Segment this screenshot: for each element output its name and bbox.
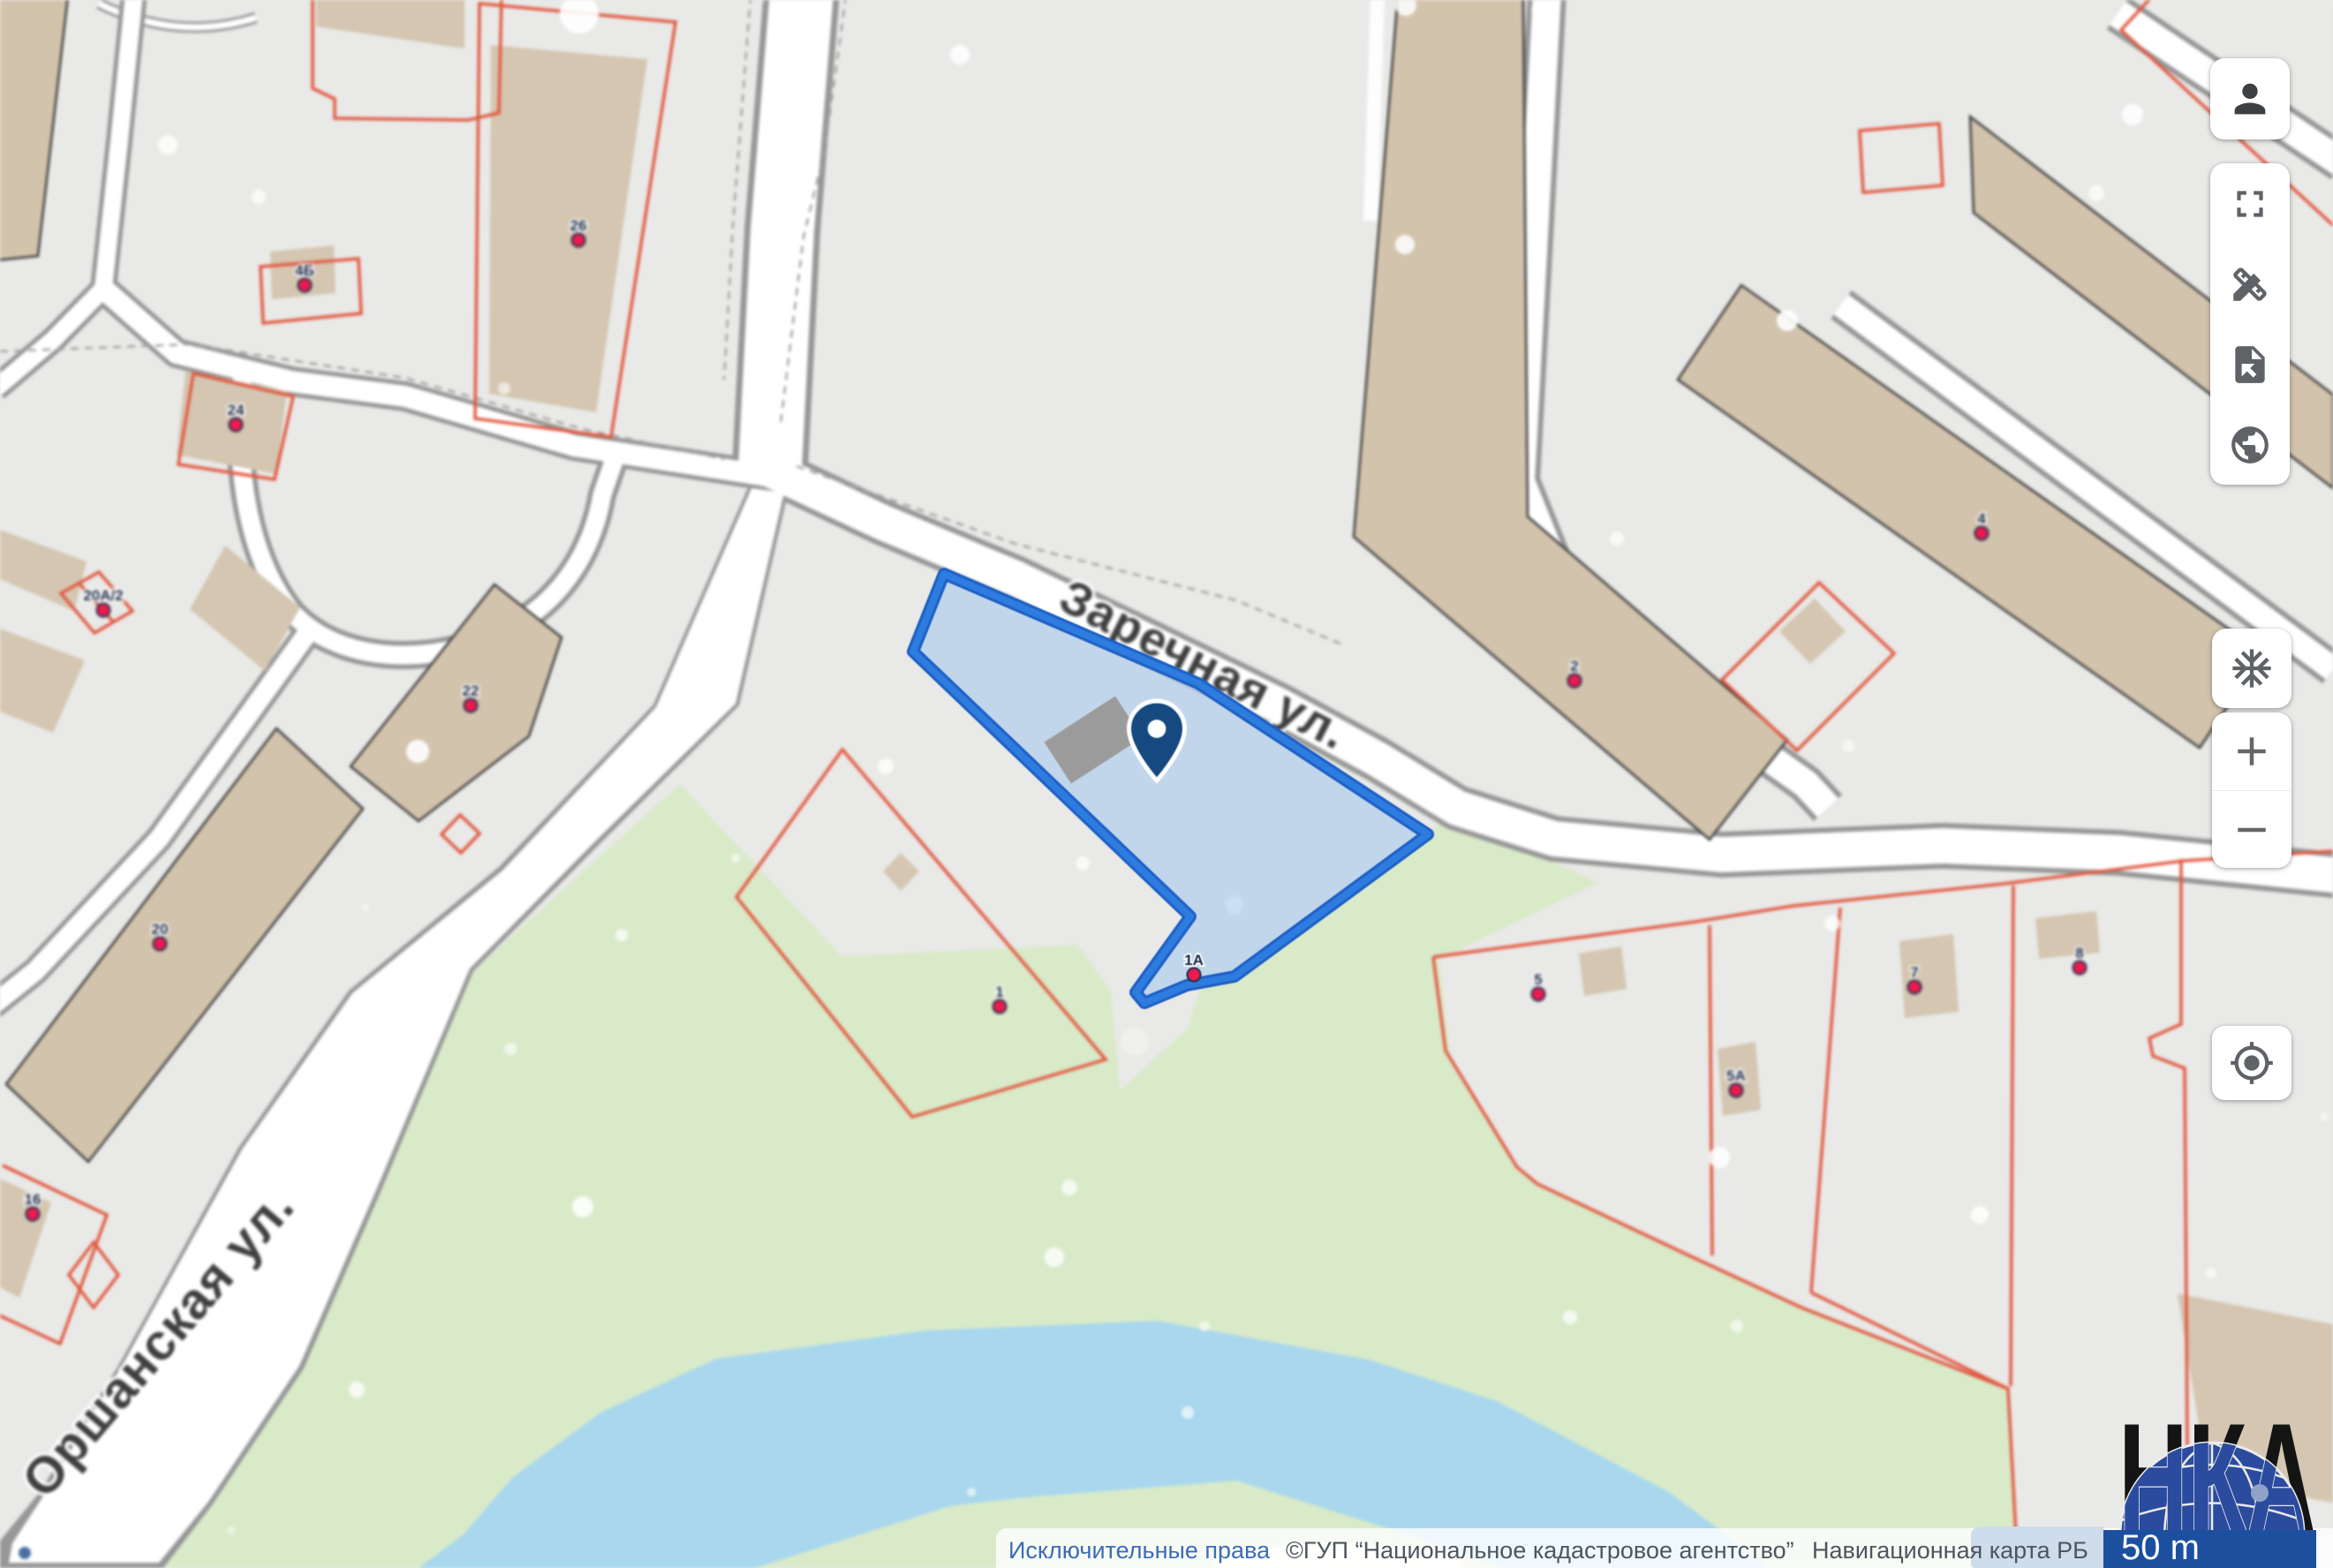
svg-text:1А: 1А (1184, 952, 1204, 969)
